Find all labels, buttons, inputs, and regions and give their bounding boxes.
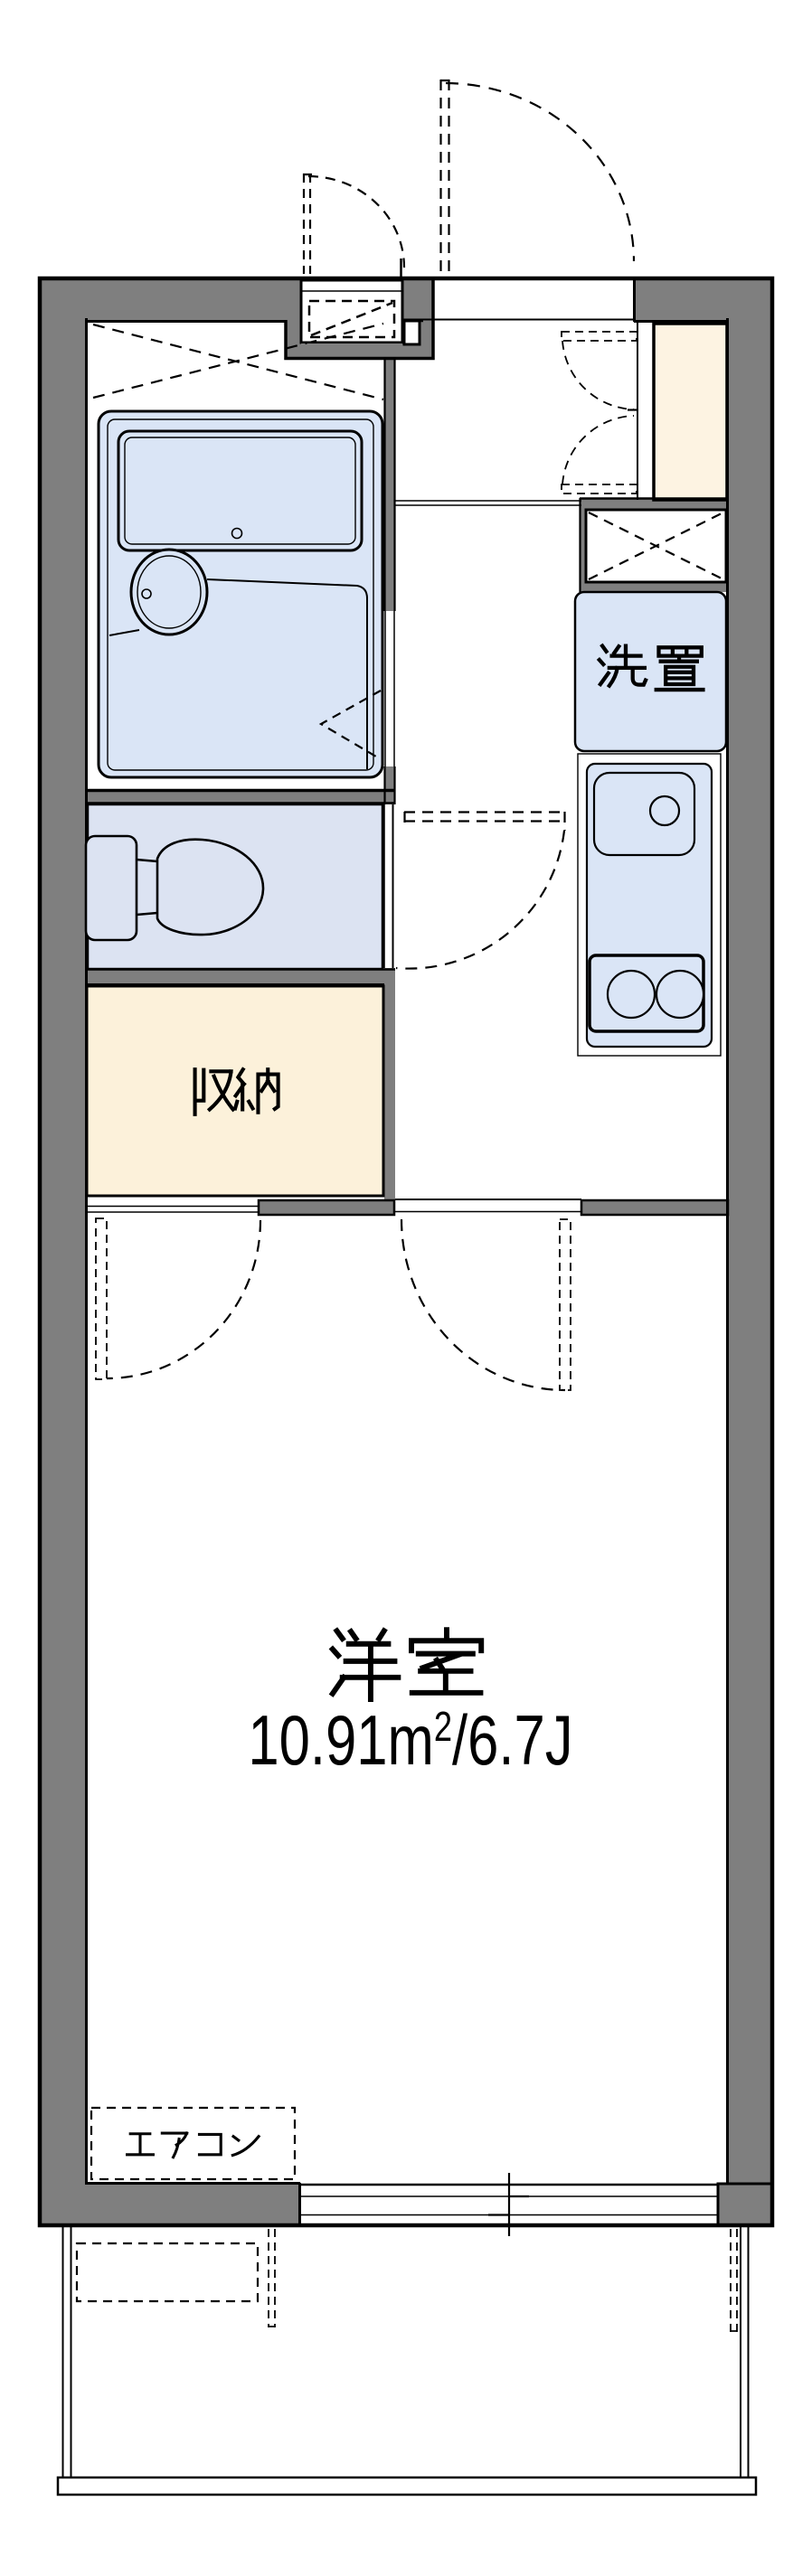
svg-text:10.91m2/6.7J: 10.91m2/6.7J <box>248 1700 572 1780</box>
